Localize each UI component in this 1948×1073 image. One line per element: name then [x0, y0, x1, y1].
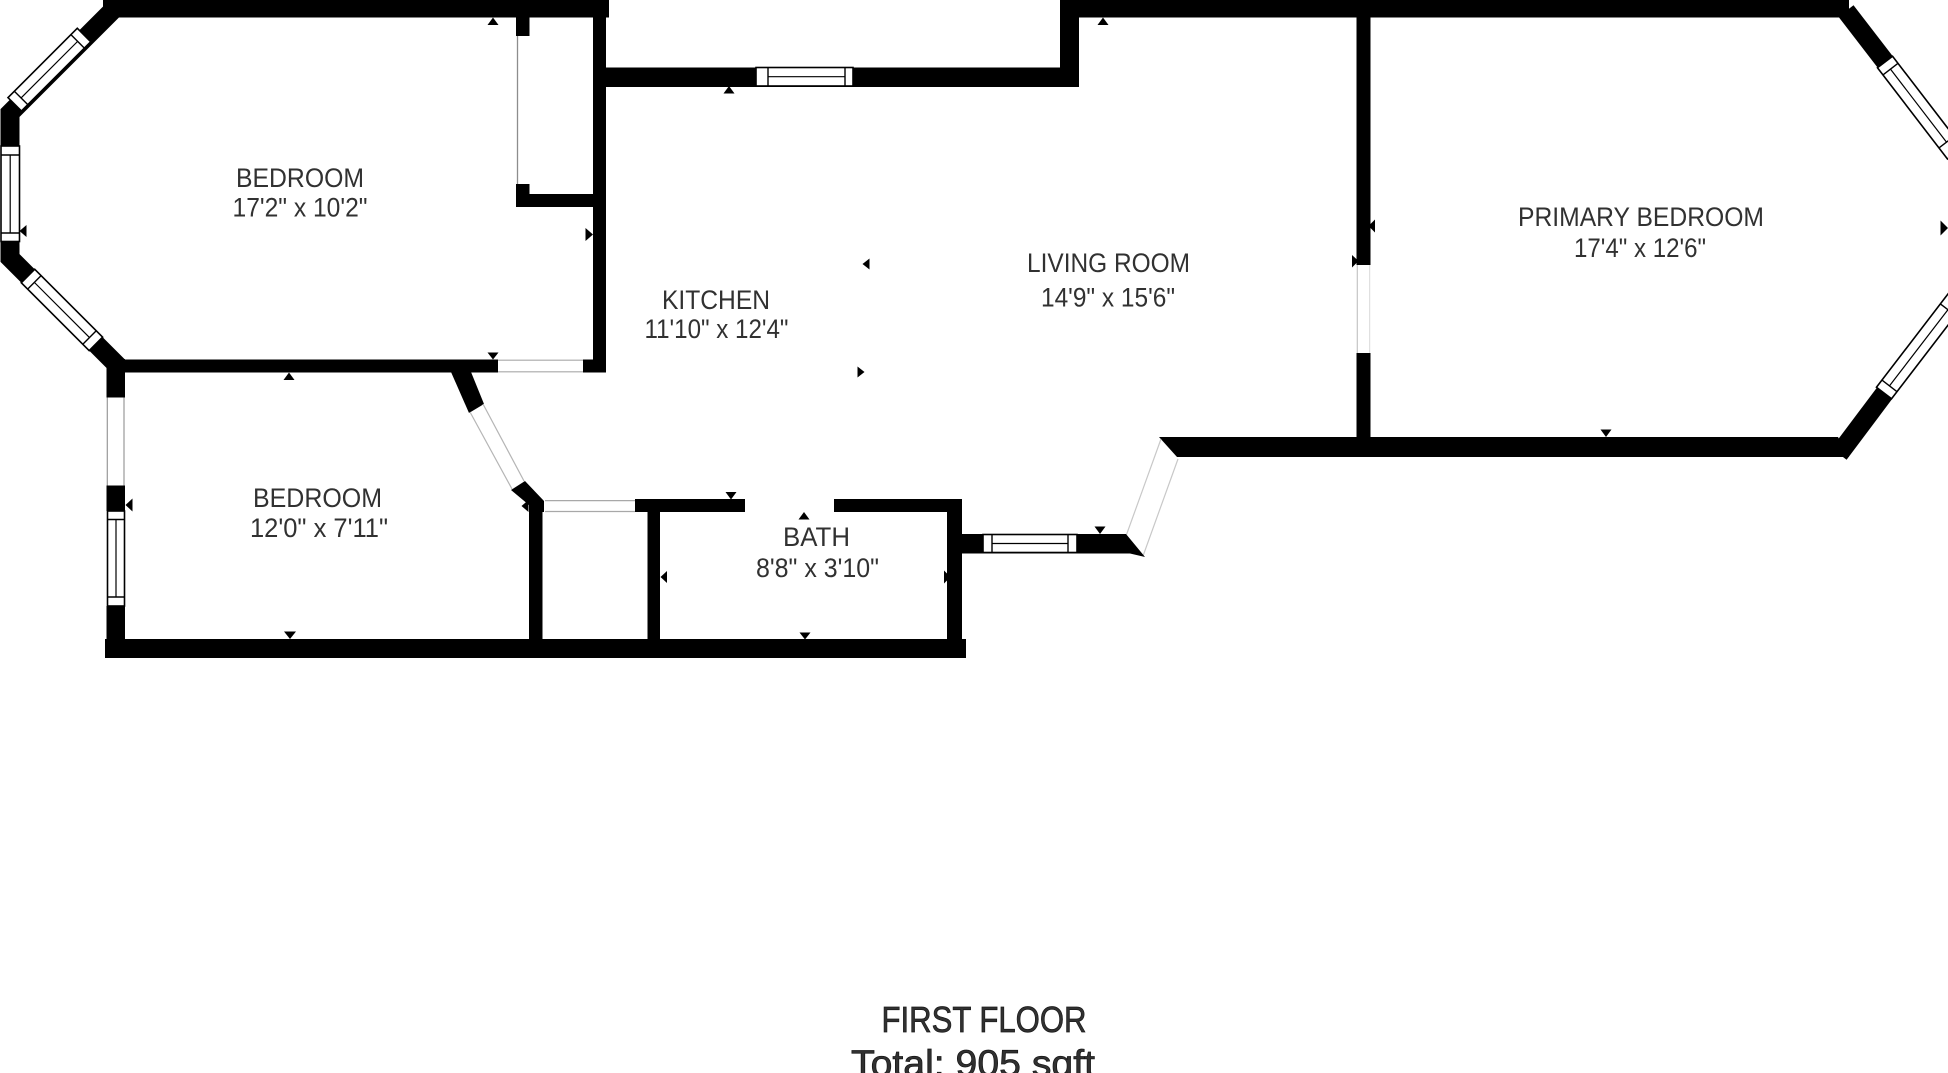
- svg-text:KITCHEN: KITCHEN: [662, 285, 770, 315]
- svg-text:BEDROOM: BEDROOM: [236, 163, 364, 193]
- svg-text:12'0" x 7'11": 12'0" x 7'11": [250, 513, 388, 543]
- svg-text:FIRST FLOOR: FIRST FLOOR: [882, 999, 1087, 1040]
- svg-text:8'8" x 3'10": 8'8" x 3'10": [756, 553, 879, 583]
- svg-text:BEDROOM: BEDROOM: [253, 483, 382, 513]
- svg-text:LIVING ROOM: LIVING ROOM: [1027, 248, 1190, 278]
- svg-text:17'4" x 12'6": 17'4" x 12'6": [1574, 233, 1706, 263]
- svg-text:11'10" x 12'4": 11'10" x 12'4": [645, 314, 789, 344]
- svg-text:BATH: BATH: [783, 522, 850, 552]
- svg-text:PRIMARY BEDROOM: PRIMARY BEDROOM: [1518, 202, 1764, 232]
- svg-text:Total: 905 sqft: Total: 905 sqft: [851, 1043, 1096, 1073]
- svg-text:17'2" x 10'2": 17'2" x 10'2": [233, 193, 368, 223]
- svg-text:14'9" x 15'6": 14'9" x 15'6": [1041, 283, 1175, 313]
